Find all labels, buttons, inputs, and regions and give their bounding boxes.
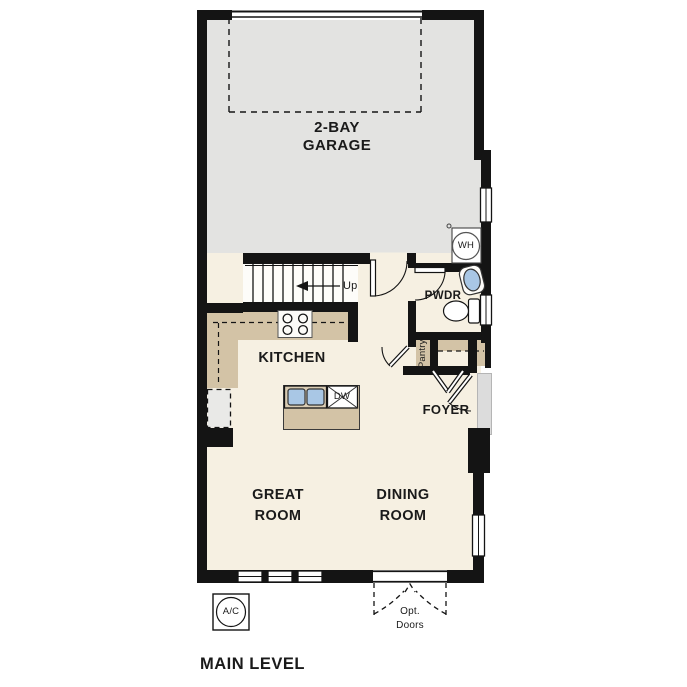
dining-room-label: DINING ROOM (353, 485, 453, 527)
wall-right-lower (473, 473, 484, 583)
kitchen-counter-left (207, 340, 238, 388)
pantry-label: Pantry (417, 334, 429, 374)
foyer-label: FOYER (406, 402, 486, 418)
great-room-label-line2: ROOM (255, 508, 302, 524)
wall-powder-top (408, 263, 491, 272)
water-heater-label: WH (446, 240, 486, 252)
page-title: MAIN LEVEL (200, 654, 305, 674)
great-room-label: GREAT ROOM (228, 485, 328, 527)
stairwell (243, 264, 358, 302)
wall-great-room-stub (197, 428, 233, 447)
wall-right-jog (474, 150, 491, 160)
wall-right-upper (474, 10, 484, 160)
wall-garage-bottom-left (243, 253, 370, 264)
optional-doors-label-line1: Opt. (400, 606, 420, 617)
optional-doors-label-line2: Doors (396, 620, 424, 631)
wall-top-right (422, 10, 477, 20)
garage-label: 2-BAY GARAGE (287, 119, 387, 156)
dishwasher-label: DW (327, 391, 357, 403)
powder-room-label: PWDR (413, 289, 473, 303)
ac-unit-label: A/C (211, 606, 251, 618)
wall-kitchen-top-left (197, 303, 243, 313)
dining-room-label-line2: ROOM (380, 508, 427, 524)
garage-label-line1: 2-BAY (314, 119, 360, 136)
wall-stairs-bottom (243, 302, 358, 312)
wall-pantry-bench-bottom (403, 366, 470, 375)
dining-room-label-line1: DINING (376, 487, 429, 503)
garage-door-opening (228, 12, 422, 18)
foyer-bench-shelf (433, 340, 485, 351)
garage-label-line2: GARAGE (303, 137, 371, 154)
wall-bottom (197, 570, 484, 583)
wall-bench-right (485, 337, 491, 368)
wall-top-left (197, 10, 232, 20)
stairs-up-label: Up (343, 280, 357, 293)
kitchen-counter-top (207, 312, 348, 340)
kitchen-label: KITCHEN (242, 350, 342, 368)
floor-plan: 2-BAY GARAGE KITCHEN GREAT ROOM DINING R… (0, 0, 687, 687)
optional-doors-label: Opt. Doors (380, 605, 440, 632)
wall-foyer-bump (468, 428, 490, 473)
foyer-bench-side (476, 351, 485, 366)
wall-counter-cap (348, 302, 358, 342)
wall-left (197, 10, 207, 583)
great-room-label-line1: GREAT (252, 487, 304, 503)
